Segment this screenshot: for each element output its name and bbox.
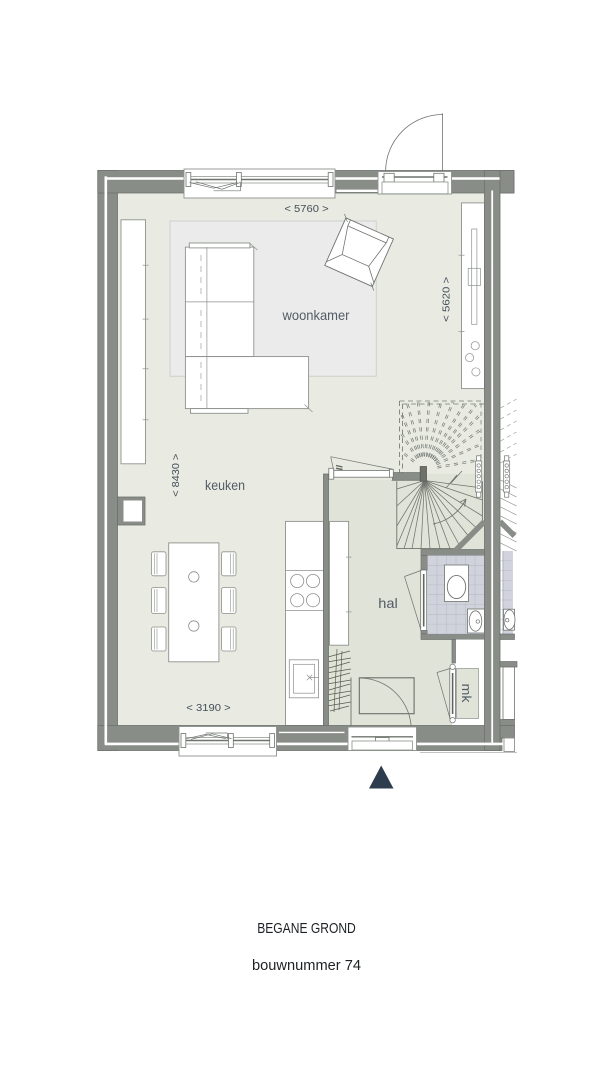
svg-text:< 3190 >: < 3190 > (186, 703, 231, 714)
svg-text:< 5620 >: < 5620 > (442, 277, 453, 322)
svg-text:bouwnummer 74: bouwnummer 74 (252, 957, 361, 974)
svg-text:hal: hal (378, 595, 398, 611)
svg-text:woonkamer: woonkamer (282, 307, 350, 323)
svg-text:< 8430 >: < 8430 > (171, 454, 182, 497)
svg-text:keuken: keuken (205, 477, 245, 493)
svg-text:mk: mk (459, 684, 474, 704)
svg-text:< 5760 >: < 5760 > (284, 204, 328, 215)
svg-text:BEGANE GROND: BEGANE GROND (257, 921, 356, 937)
